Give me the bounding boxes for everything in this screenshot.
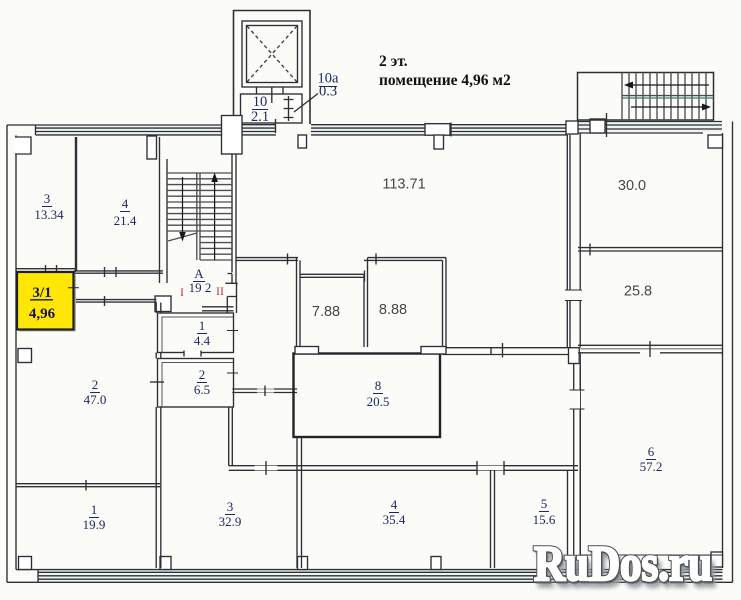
svg-text:47.0: 47.0 — [84, 392, 107, 407]
svg-text:8: 8 — [375, 378, 382, 393]
svg-text:4: 4 — [122, 196, 129, 211]
svg-text:32.9: 32.9 — [219, 514, 242, 529]
svg-text:57.2: 57.2 — [640, 459, 663, 474]
svg-text:4.4: 4.4 — [194, 333, 211, 348]
svg-text:5: 5 — [541, 496, 548, 511]
svg-text:20.5: 20.5 — [367, 394, 390, 409]
svg-text:25.8: 25.8 — [624, 284, 652, 300]
svg-text:RuDos.ru: RuDos.ru — [534, 536, 712, 591]
svg-text:2 эт.: 2 эт. — [379, 53, 408, 70]
svg-text:13.34: 13.34 — [34, 207, 64, 222]
svg-text:15.6: 15.6 — [533, 512, 556, 527]
svg-text:6: 6 — [648, 444, 655, 459]
svg-text:8.88: 8.88 — [379, 302, 407, 318]
svg-text:10: 10 — [253, 94, 268, 110]
svg-text:19 2: 19 2 — [189, 280, 212, 295]
svg-text:помещение 4,96 м2: помещение 4,96 м2 — [379, 72, 511, 89]
svg-text:1: 1 — [199, 318, 206, 333]
svg-text:4: 4 — [391, 497, 398, 512]
svg-text:А: А — [194, 266, 204, 281]
svg-text:1: 1 — [91, 502, 98, 517]
svg-text:113.71: 113.71 — [382, 177, 425, 193]
svg-text:35.4: 35.4 — [383, 512, 406, 527]
svg-text:I: I — [180, 285, 184, 299]
svg-text:4,96: 4,96 — [29, 306, 56, 322]
svg-text:19.9: 19.9 — [83, 517, 106, 532]
svg-text:3/1: 3/1 — [32, 285, 51, 301]
svg-text:2.1: 2.1 — [251, 109, 269, 125]
svg-text:7.88: 7.88 — [312, 304, 340, 320]
svg-text:2: 2 — [199, 367, 206, 382]
svg-text:3: 3 — [44, 191, 51, 206]
svg-text:30.0: 30.0 — [618, 178, 646, 194]
svg-text:II: II — [216, 284, 224, 298]
svg-text:6.5: 6.5 — [194, 382, 210, 397]
svg-text:0.3: 0.3 — [319, 84, 337, 100]
svg-text:2: 2 — [92, 377, 99, 392]
svg-text:3: 3 — [227, 499, 234, 514]
svg-text:21.4: 21.4 — [114, 213, 137, 228]
